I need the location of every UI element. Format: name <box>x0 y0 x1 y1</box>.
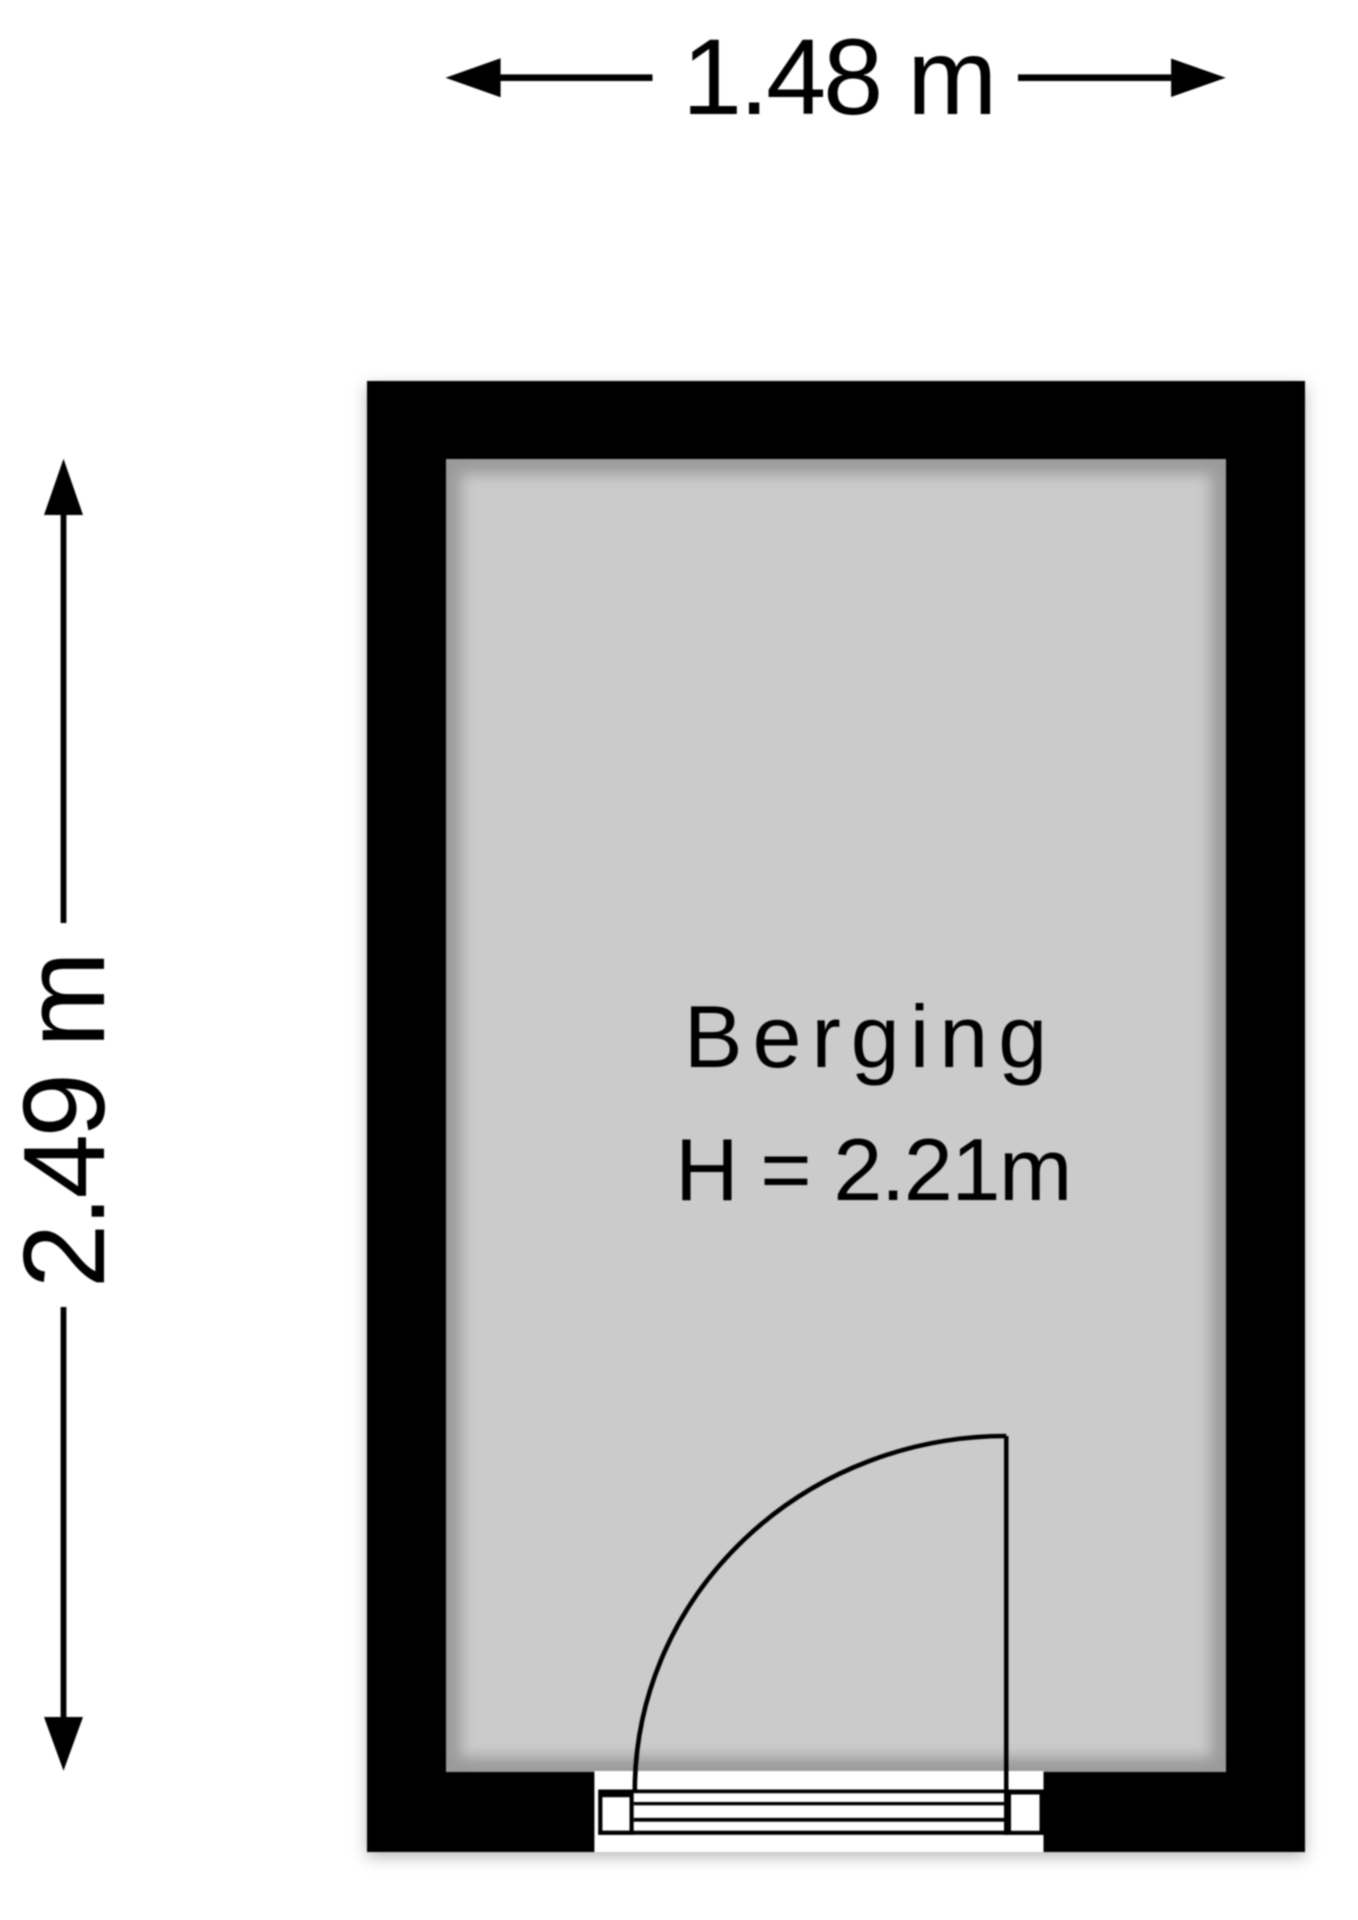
svg-text:1.48 m: 1.48 m <box>682 16 994 137</box>
svg-text:2.49 m: 2.49 m <box>0 955 129 1289</box>
svg-text:H = 2.21m: H = 2.21m <box>675 1120 1071 1219</box>
svg-text:Berging: Berging <box>684 987 1057 1086</box>
